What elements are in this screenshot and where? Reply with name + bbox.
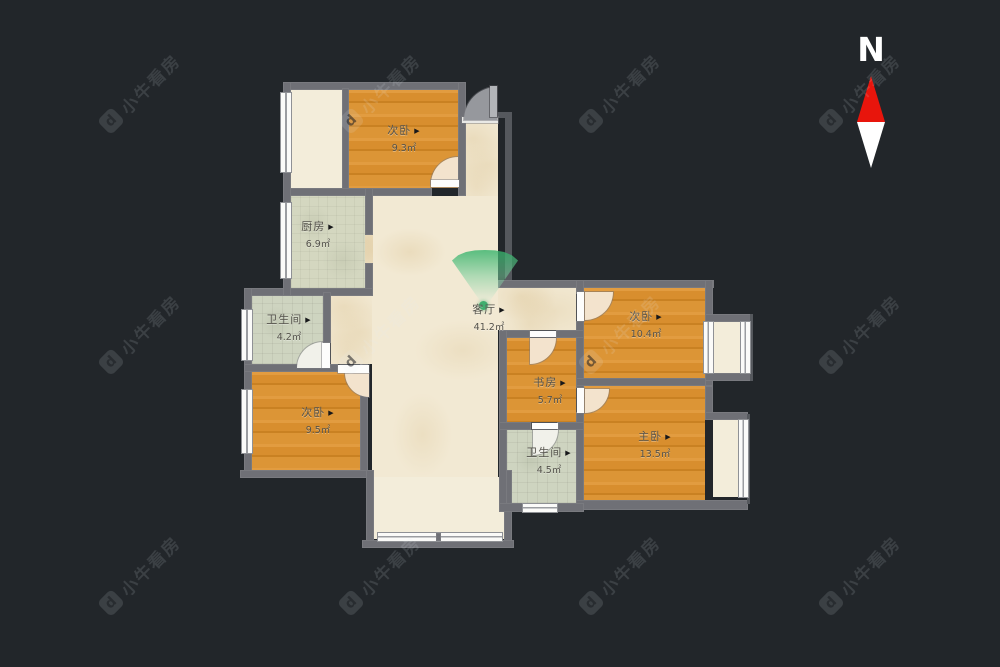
room-label-kitchen[interactable]: 厨房▶ 6.9㎡ bbox=[301, 218, 334, 250]
wall bbox=[323, 292, 331, 343]
floor-hall bbox=[462, 123, 498, 198]
watermark-logo-icon: d bbox=[817, 348, 845, 376]
room-name: 厨房 bbox=[301, 220, 325, 233]
room-name: 次卧 bbox=[387, 124, 411, 137]
room-label-bedroom-top[interactable]: 次卧▶ 9.3㎡ bbox=[387, 122, 420, 154]
watermark-logo-icon: d bbox=[817, 589, 845, 617]
wall bbox=[365, 188, 373, 235]
wall bbox=[556, 330, 584, 338]
compass-needle-south bbox=[857, 122, 885, 168]
floor-living bbox=[372, 196, 498, 477]
marker-icon[interactable]: ▶ bbox=[328, 409, 334, 417]
window bbox=[281, 203, 291, 278]
wall bbox=[750, 314, 753, 381]
door-leaf bbox=[530, 331, 556, 337]
watermark: d小牛看房 bbox=[71, 505, 210, 644]
watermark-logo-icon: d bbox=[577, 107, 605, 135]
compass: N bbox=[838, 32, 904, 182]
room-area: 9.3㎡ bbox=[387, 140, 420, 154]
room-label-bathroom-left[interactable]: 卫生间▶ 4.2㎡ bbox=[266, 311, 311, 343]
door-leaf bbox=[338, 365, 369, 373]
floor-balcony-top bbox=[291, 90, 342, 188]
wall bbox=[240, 470, 370, 478]
watermark: d小牛看房 bbox=[71, 23, 210, 162]
floor-living-notch bbox=[331, 292, 372, 364]
floor-bay-window-1 bbox=[713, 322, 742, 373]
wall bbox=[283, 278, 291, 296]
door-leaf bbox=[577, 388, 584, 413]
wall bbox=[362, 540, 514, 548]
wall bbox=[458, 82, 466, 196]
room-name: 客厅 bbox=[472, 303, 496, 316]
wall bbox=[576, 500, 748, 510]
room-name: 次卧 bbox=[629, 310, 653, 323]
marker-icon[interactable]: ▶ bbox=[305, 316, 311, 324]
room-area: 4.2㎡ bbox=[266, 329, 311, 343]
wall bbox=[244, 288, 252, 310]
wall bbox=[557, 422, 584, 430]
window bbox=[523, 504, 557, 512]
room-name: 卫生间 bbox=[266, 313, 302, 326]
watermark: d小牛看房 bbox=[551, 505, 690, 644]
watermark-logo-icon: d bbox=[97, 589, 125, 617]
marker-icon[interactable]: ▶ bbox=[499, 306, 505, 314]
marker-icon[interactable]: ▶ bbox=[665, 433, 671, 441]
wall bbox=[283, 188, 432, 196]
wall bbox=[705, 314, 751, 322]
marker-icon[interactable]: ▶ bbox=[328, 223, 334, 231]
window-mullion bbox=[436, 533, 441, 541]
watermark-logo-icon: d bbox=[97, 348, 125, 376]
window bbox=[242, 310, 252, 360]
room-area: 6.9㎡ bbox=[301, 236, 334, 250]
room-area: 10.4㎡ bbox=[629, 326, 662, 340]
window bbox=[741, 322, 750, 373]
marker-icon[interactable]: ▶ bbox=[414, 127, 420, 135]
room-area: 9.5㎡ bbox=[301, 422, 334, 436]
door-leaf bbox=[322, 343, 330, 368]
door-leaf bbox=[532, 423, 558, 429]
room-label-living[interactable]: 客厅▶ 41.2㎡ bbox=[472, 301, 505, 333]
floor-bay-window-2 bbox=[713, 420, 740, 497]
room-area: 4.5㎡ bbox=[526, 462, 571, 476]
wall bbox=[366, 470, 374, 548]
watermark: d小牛看房 bbox=[551, 23, 690, 162]
room-label-bathroom-mid[interactable]: 卫生间▶ 4.5㎡ bbox=[526, 444, 571, 476]
wall bbox=[705, 373, 751, 381]
room-label-study[interactable]: 书房▶ 5.7㎡ bbox=[533, 374, 566, 406]
window bbox=[704, 322, 713, 373]
room-label-bedroom-left[interactable]: 次卧▶ 9.5㎡ bbox=[301, 404, 334, 436]
wall bbox=[576, 378, 713, 386]
marker-icon[interactable]: ▶ bbox=[656, 313, 662, 321]
watermark: d小牛看房 bbox=[791, 264, 930, 403]
room-name: 书房 bbox=[533, 376, 557, 389]
wall bbox=[244, 288, 373, 296]
window bbox=[242, 390, 252, 453]
room-area: 41.2㎡ bbox=[472, 319, 505, 333]
room-area: 13.5㎡ bbox=[638, 446, 671, 460]
wall bbox=[498, 280, 714, 288]
watermark-logo-icon: d bbox=[337, 589, 365, 617]
marker-icon[interactable]: ▶ bbox=[565, 449, 571, 457]
watermark: d小牛看房 bbox=[71, 264, 210, 403]
window bbox=[739, 420, 748, 497]
watermark: d小牛看房 bbox=[791, 505, 930, 644]
floor-kitchen-passage bbox=[365, 235, 373, 263]
room-name: 卫生间 bbox=[526, 446, 562, 459]
room-label-master-bedroom[interactable]: 主卧▶ 13.5㎡ bbox=[638, 428, 671, 460]
wall bbox=[705, 412, 748, 420]
compass-needle-north bbox=[857, 76, 885, 122]
floor-balcony-bottom bbox=[374, 477, 504, 539]
door-leaf bbox=[431, 180, 459, 187]
entry-door-leaf bbox=[490, 86, 497, 117]
wall bbox=[342, 88, 349, 190]
watermark-logo-icon: d bbox=[97, 107, 125, 135]
wall bbox=[499, 330, 507, 512]
wall bbox=[497, 112, 512, 118]
wall bbox=[283, 82, 466, 90]
marker-icon[interactable]: ▶ bbox=[560, 379, 566, 387]
room-label-bedroom-right[interactable]: 次卧▶ 10.4㎡ bbox=[629, 308, 662, 340]
room-name: 次卧 bbox=[301, 406, 325, 419]
compass-north-label: N bbox=[838, 32, 904, 68]
wall bbox=[283, 82, 291, 93]
wall bbox=[557, 503, 584, 512]
room-area: 5.7㎡ bbox=[533, 392, 566, 406]
floor-corridor bbox=[498, 288, 576, 330]
wall bbox=[499, 422, 531, 430]
window bbox=[281, 93, 291, 172]
door-leaf bbox=[577, 292, 584, 321]
wall bbox=[283, 172, 291, 203]
room-name: 主卧 bbox=[638, 430, 662, 443]
wall bbox=[499, 503, 523, 512]
watermark-logo-icon: d bbox=[577, 589, 605, 617]
